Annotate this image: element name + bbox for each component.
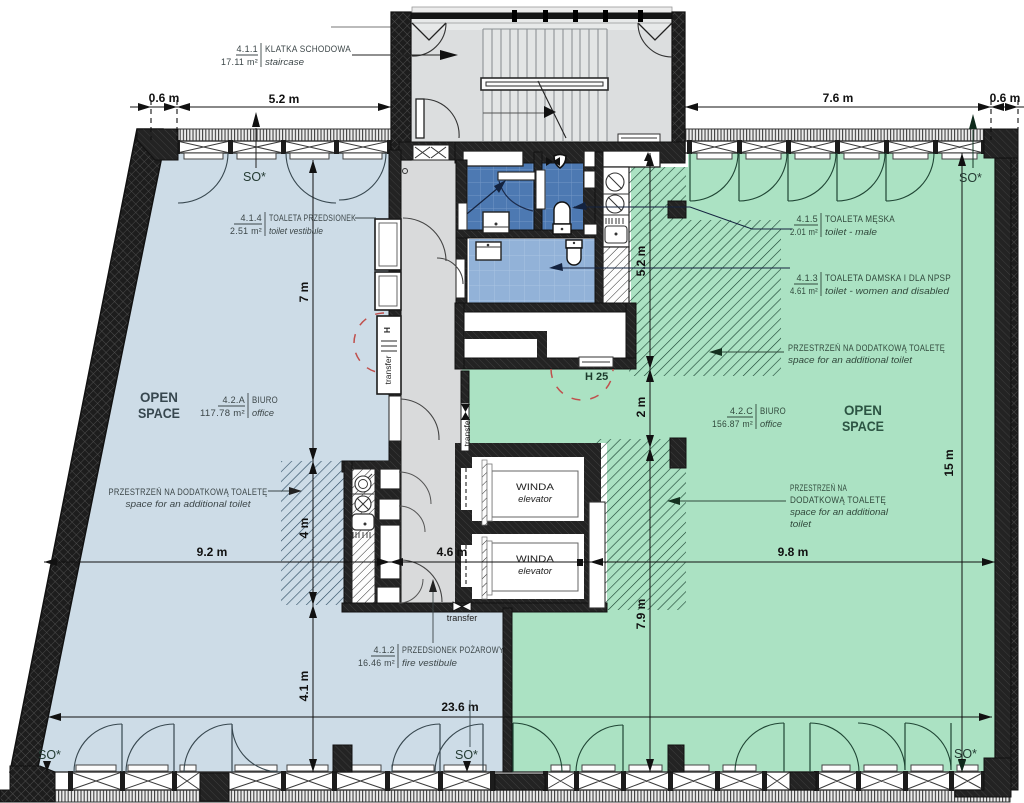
svg-text:4.1.5: 4.1.5: [796, 214, 818, 224]
svg-text:SPACE: SPACE: [842, 418, 884, 434]
svg-text:space for an additional: space for an additional: [790, 507, 889, 517]
svg-text:PRZESTRZEŃ NA: PRZESTRZEŃ NA: [790, 483, 847, 493]
svg-text:SO*: SO*: [455, 748, 478, 762]
svg-text:elevator: elevator: [518, 494, 553, 505]
svg-text:5.2 m: 5.2 m: [269, 92, 300, 106]
svg-text:4.6 m: 4.6 m: [437, 545, 468, 559]
svg-text:4.2.C: 4.2.C: [730, 406, 753, 416]
svg-text:SPACE: SPACE: [138, 405, 180, 421]
svg-text:4.61 m²: 4.61 m²: [790, 286, 818, 296]
svg-text:4.1.3: 4.1.3: [796, 273, 818, 283]
svg-text:space for an additional toilet: space for an additional toilet: [788, 355, 913, 365]
svg-text:H: H: [382, 327, 392, 333]
svg-text:7.6 m: 7.6 m: [823, 91, 854, 105]
svg-text:elevator: elevator: [518, 566, 553, 577]
svg-text:DODATKOWĄ TOALETĘ: DODATKOWĄ TOALETĘ: [790, 495, 886, 505]
svg-text:transfer: transfer: [462, 417, 472, 446]
svg-text:space for an additional toilet: space for an additional toilet: [126, 499, 252, 509]
svg-text:9.8 m: 9.8 m: [778, 545, 809, 559]
svg-text:TOALETA PRZEDSIONEK: TOALETA PRZEDSIONEK: [269, 213, 356, 223]
svg-text:toilet: toilet: [790, 519, 812, 529]
svg-text:4.2.A: 4.2.A: [222, 395, 245, 405]
svg-text:BIURO: BIURO: [252, 395, 278, 405]
svg-text:156.87 m²: 156.87 m²: [712, 419, 753, 429]
svg-text:0.6 m: 0.6 m: [990, 91, 1021, 105]
svg-text:117.78 m²: 117.78 m²: [200, 408, 245, 418]
svg-text:SO*: SO*: [243, 170, 266, 184]
svg-text:5.2 m: 5.2 m: [634, 246, 648, 277]
svg-text:4 m: 4 m: [297, 518, 311, 539]
svg-text:toilet vestibule: toilet vestibule: [269, 226, 323, 236]
svg-text:office: office: [760, 419, 782, 429]
svg-text:TOALETA DAMSKA I DLA NPSP: TOALETA DAMSKA I DLA NPSP: [825, 273, 951, 283]
svg-text:16.46 m²: 16.46 m²: [358, 658, 395, 668]
svg-text:PRZESTRZEŃ NA DODATKOWĄ TOALET: PRZESTRZEŃ NA DODATKOWĄ TOALETĘ: [788, 343, 945, 353]
svg-text:WINDA: WINDA: [516, 554, 555, 565]
svg-text:BIURO: BIURO: [760, 406, 786, 416]
svg-text:fire vestibule: fire vestibule: [402, 658, 457, 668]
svg-text:transfer: transfer: [383, 355, 393, 384]
svg-text:SO*: SO*: [38, 748, 61, 762]
svg-text:2 m: 2 m: [634, 397, 648, 418]
svg-text:OPEN: OPEN: [140, 389, 178, 405]
svg-text:H 25: H 25: [585, 371, 608, 383]
svg-text:0.6 m: 0.6 m: [149, 91, 180, 105]
svg-text:7 m: 7 m: [297, 282, 311, 303]
svg-text:PRZEDSIONEK POŻAROWY: PRZEDSIONEK POŻAROWY: [402, 645, 504, 655]
svg-text:KLATKA SCHODOWA: KLATKA SCHODOWA: [265, 44, 351, 54]
svg-text:staircase: staircase: [265, 57, 304, 67]
svg-text:2.51 m²: 2.51 m²: [230, 226, 262, 236]
svg-text:2.01 m²: 2.01 m²: [790, 227, 818, 237]
svg-text:4.1.4: 4.1.4: [240, 213, 262, 223]
svg-text:WINDA: WINDA: [516, 482, 555, 493]
svg-text:transfer: transfer: [447, 613, 478, 623]
svg-text:toilet - male: toilet - male: [825, 227, 877, 237]
svg-text:TOALETA MĘSKA: TOALETA MĘSKA: [825, 214, 895, 224]
svg-text:9.2 m: 9.2 m: [197, 545, 228, 559]
svg-text:4.1 m: 4.1 m: [297, 671, 311, 702]
svg-text:23.6 m: 23.6 m: [441, 700, 478, 714]
svg-text:SO*: SO*: [959, 171, 982, 185]
svg-text:4.1.1: 4.1.1: [236, 44, 258, 54]
svg-text:SO*: SO*: [954, 747, 977, 761]
svg-text:OPEN: OPEN: [844, 402, 882, 418]
svg-text:7.9 m: 7.9 m: [634, 599, 648, 630]
svg-text:15 m: 15 m: [942, 449, 956, 476]
svg-text:toilet - women and disabled: toilet - women and disabled: [825, 286, 950, 296]
svg-text:4.1.2: 4.1.2: [373, 645, 395, 655]
svg-text:17.11 m²: 17.11 m²: [221, 57, 258, 67]
svg-text:office: office: [252, 408, 274, 418]
svg-text:PRZESTRZEŃ NA DODATKOWĄ TOALET: PRZESTRZEŃ NA DODATKOWĄ TOALETĘ: [109, 487, 268, 497]
